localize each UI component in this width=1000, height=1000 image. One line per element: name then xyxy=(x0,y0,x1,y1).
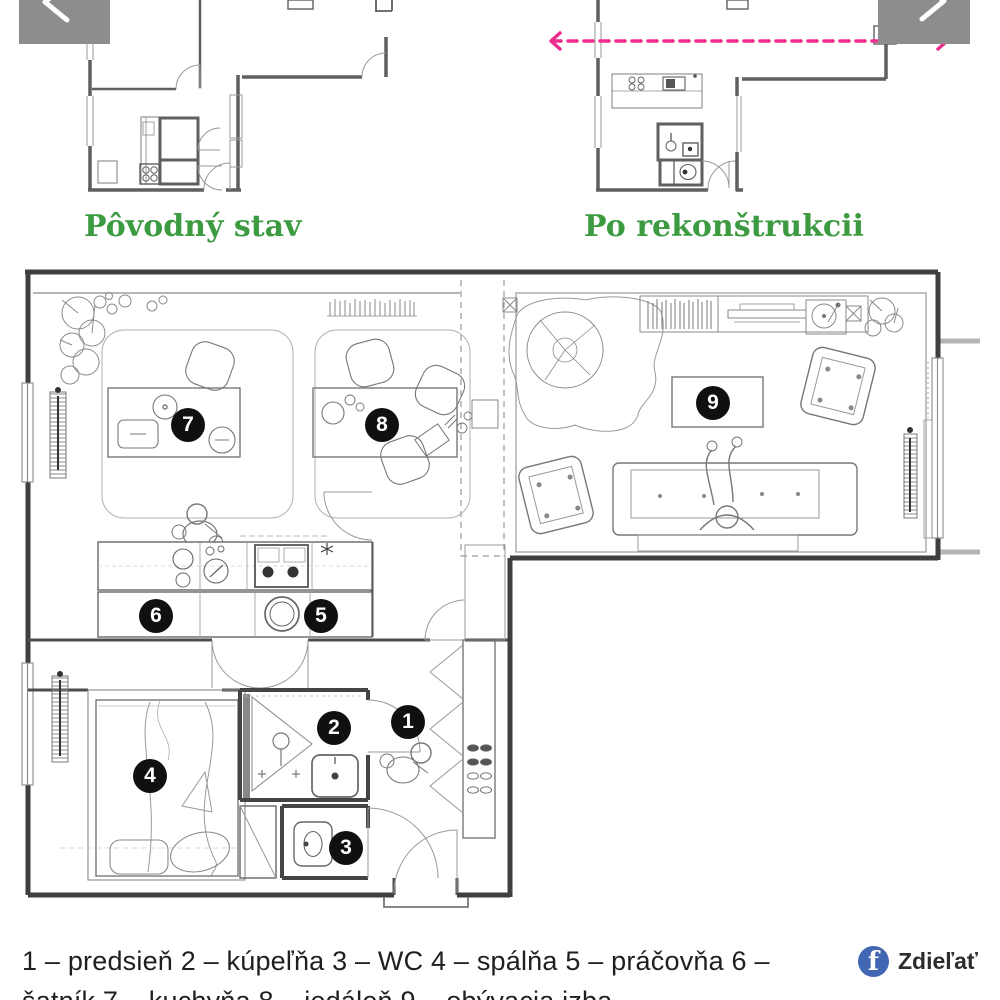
room-badge-6: 6 xyxy=(139,599,173,633)
sofa xyxy=(613,463,857,551)
person-sofa xyxy=(700,437,754,530)
armchair-bottom xyxy=(517,454,596,535)
kitchen-table xyxy=(108,338,240,457)
person-hallway xyxy=(380,743,431,783)
share-label: Zdieľať xyxy=(898,948,978,975)
floorplan-drawing xyxy=(0,0,1000,1000)
room-badge-9: 9 xyxy=(696,386,730,420)
plan-label-after: Po rekonštrukcii xyxy=(584,209,864,244)
kitchen-counter xyxy=(98,536,372,590)
bathroom xyxy=(240,690,420,800)
plan-label-before: Pôvodný stav xyxy=(84,209,302,244)
chevron-right-icon xyxy=(878,0,970,44)
room-badge-7: 7 xyxy=(171,408,205,442)
chevron-left-icon xyxy=(19,0,110,44)
small-plan-after xyxy=(595,0,896,191)
shoe-rack xyxy=(468,745,492,793)
room-badge-4: 4 xyxy=(133,759,167,793)
legend-line2: šatník 7 – kuchyňa 8 – jedáleň 9 – obýva… xyxy=(22,986,852,1000)
room-badge-2: 2 xyxy=(317,711,351,745)
room-badge-8: 8 xyxy=(365,408,399,442)
carousel-prev-button[interactable] xyxy=(19,0,110,44)
small-plan-before xyxy=(87,0,392,191)
armchair-top xyxy=(799,345,878,426)
carousel-next-button[interactable] xyxy=(878,0,970,44)
room-badge-1: 1 xyxy=(391,705,425,739)
facebook-icon: f xyxy=(858,946,889,977)
room-badge-3: 3 xyxy=(329,831,363,865)
living-room xyxy=(503,296,903,551)
room-badge-5: 5 xyxy=(304,599,338,633)
plant-topright xyxy=(865,298,903,336)
article-image-block: Pôvodný stav Po rekonštrukcii 123456789 … xyxy=(0,0,1000,1000)
share-button[interactable]: f Zdieľať xyxy=(858,946,978,977)
plant-topleft xyxy=(60,297,105,384)
legend-line1: 1 – predsieň 2 – kúpeľňa 3 – WC 4 – spál… xyxy=(22,946,852,977)
hallway xyxy=(380,640,495,893)
main-plan xyxy=(22,272,980,907)
